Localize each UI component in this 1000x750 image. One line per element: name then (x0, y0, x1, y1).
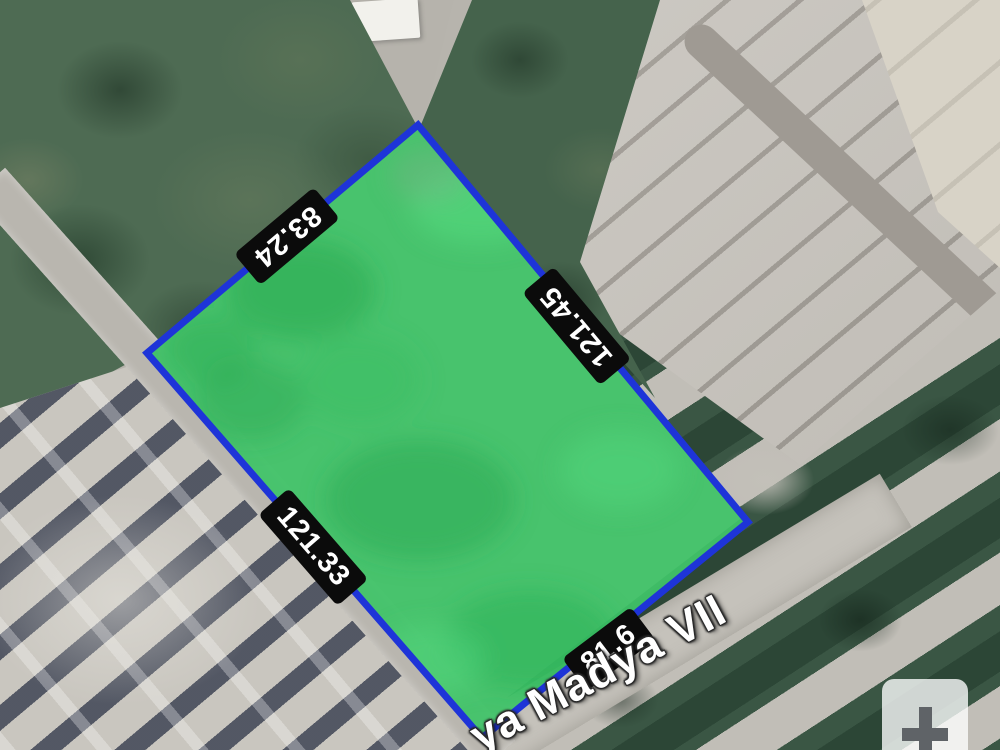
plot-overlay (0, 0, 1000, 750)
zoom-in-button[interactable] (882, 679, 968, 750)
satellite-map-canvas[interactable]: 83.24 121.45 121.33 81.6 ya Madya VII (0, 0, 1000, 750)
